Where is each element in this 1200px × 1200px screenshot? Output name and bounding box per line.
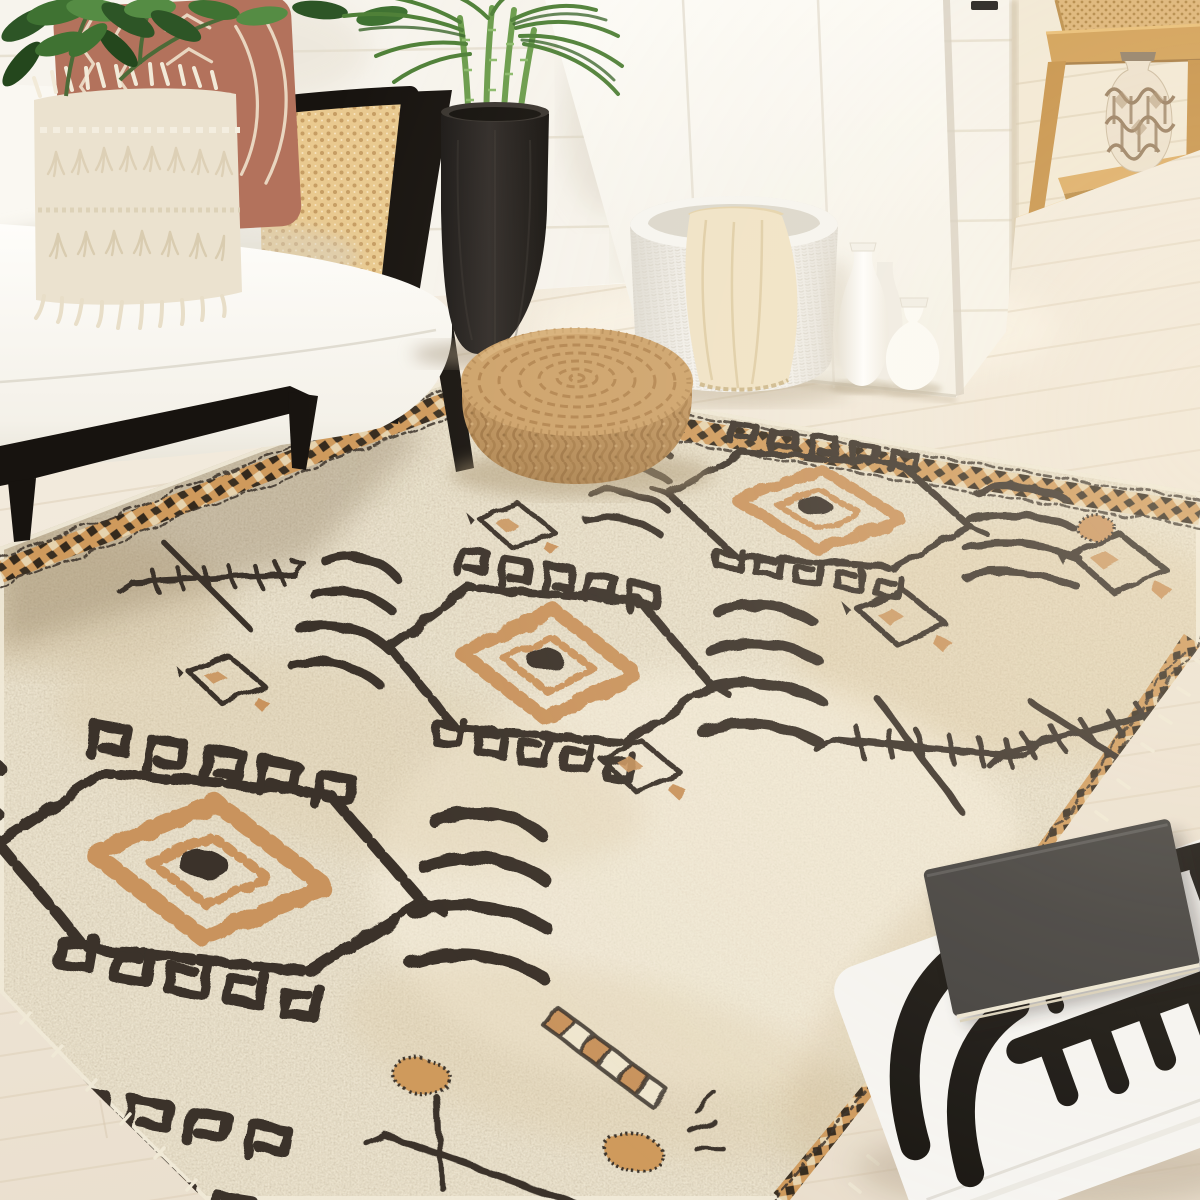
scene-canvas [0, 0, 1200, 1200]
scene-photo: Sunlit living room: black cane daybed wi… [0, 0, 1200, 1200]
sunlight-overlay [0, 0, 1200, 1200]
